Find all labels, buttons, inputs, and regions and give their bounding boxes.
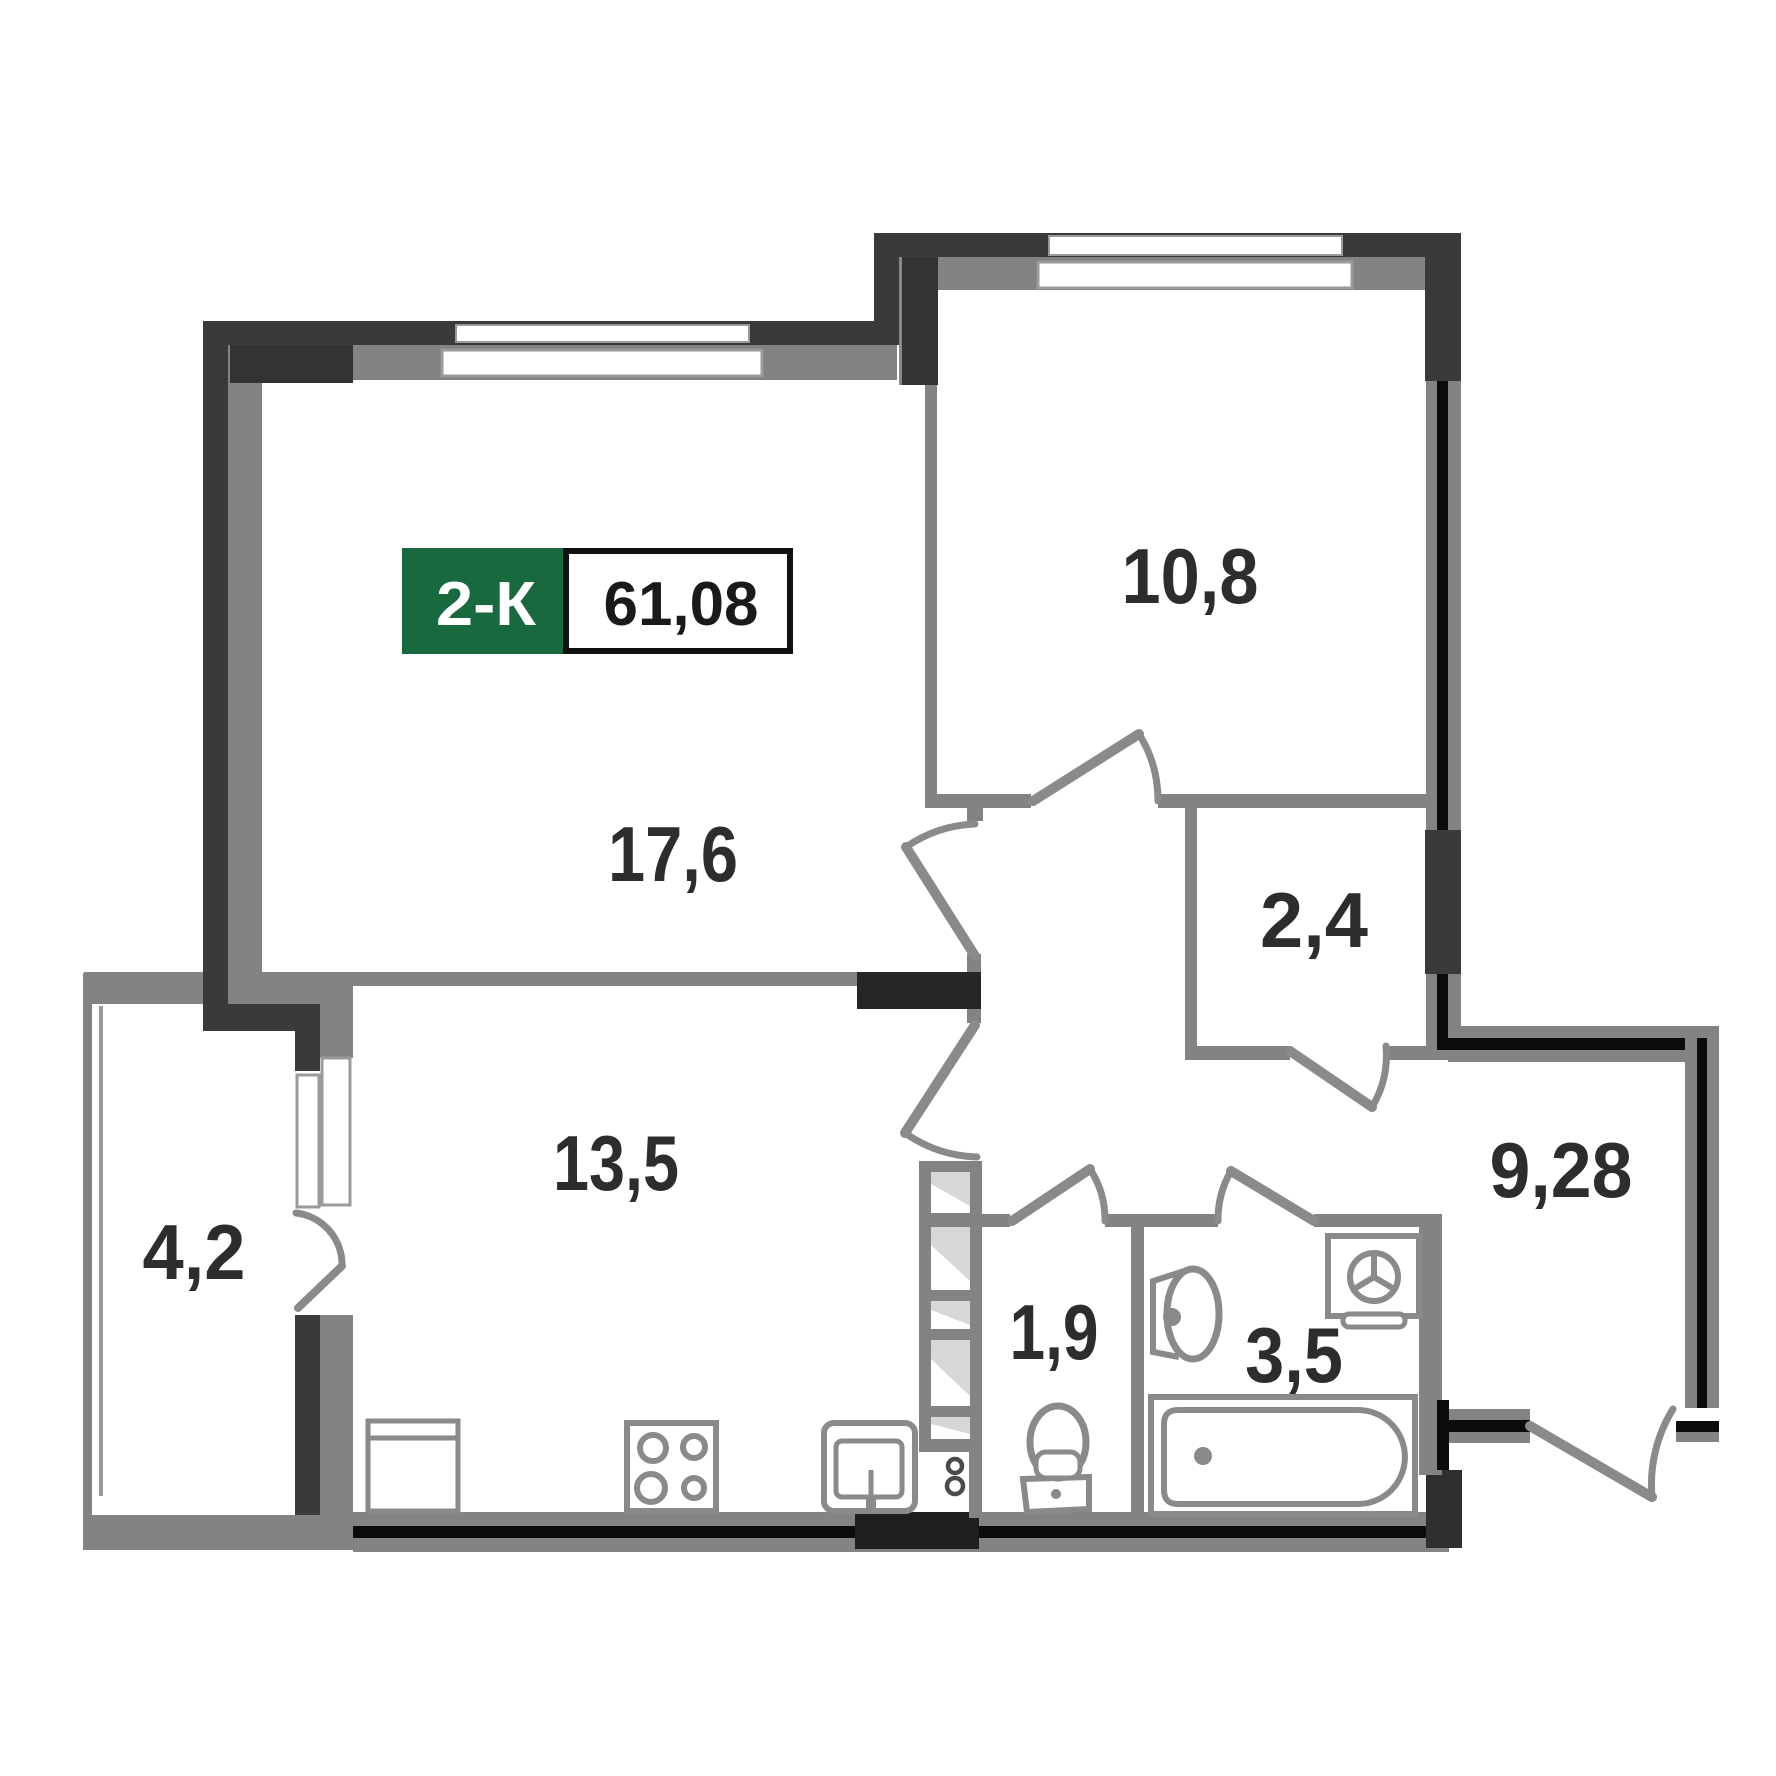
svg-text:10,8: 10,8: [1122, 532, 1259, 620]
svg-text:2,4: 2,4: [1260, 876, 1368, 964]
svg-text:17,6: 17,6: [608, 810, 738, 898]
svg-text:2-К: 2-К: [436, 570, 536, 639]
svg-text:1,9: 1,9: [1010, 1288, 1099, 1376]
svg-text:13,5: 13,5: [553, 1119, 679, 1207]
svg-text:3,5: 3,5: [1245, 1311, 1343, 1399]
svg-text:4,2: 4,2: [143, 1208, 246, 1296]
svg-text:9,28: 9,28: [1490, 1126, 1633, 1214]
svg-text:61,08: 61,08: [604, 570, 759, 639]
